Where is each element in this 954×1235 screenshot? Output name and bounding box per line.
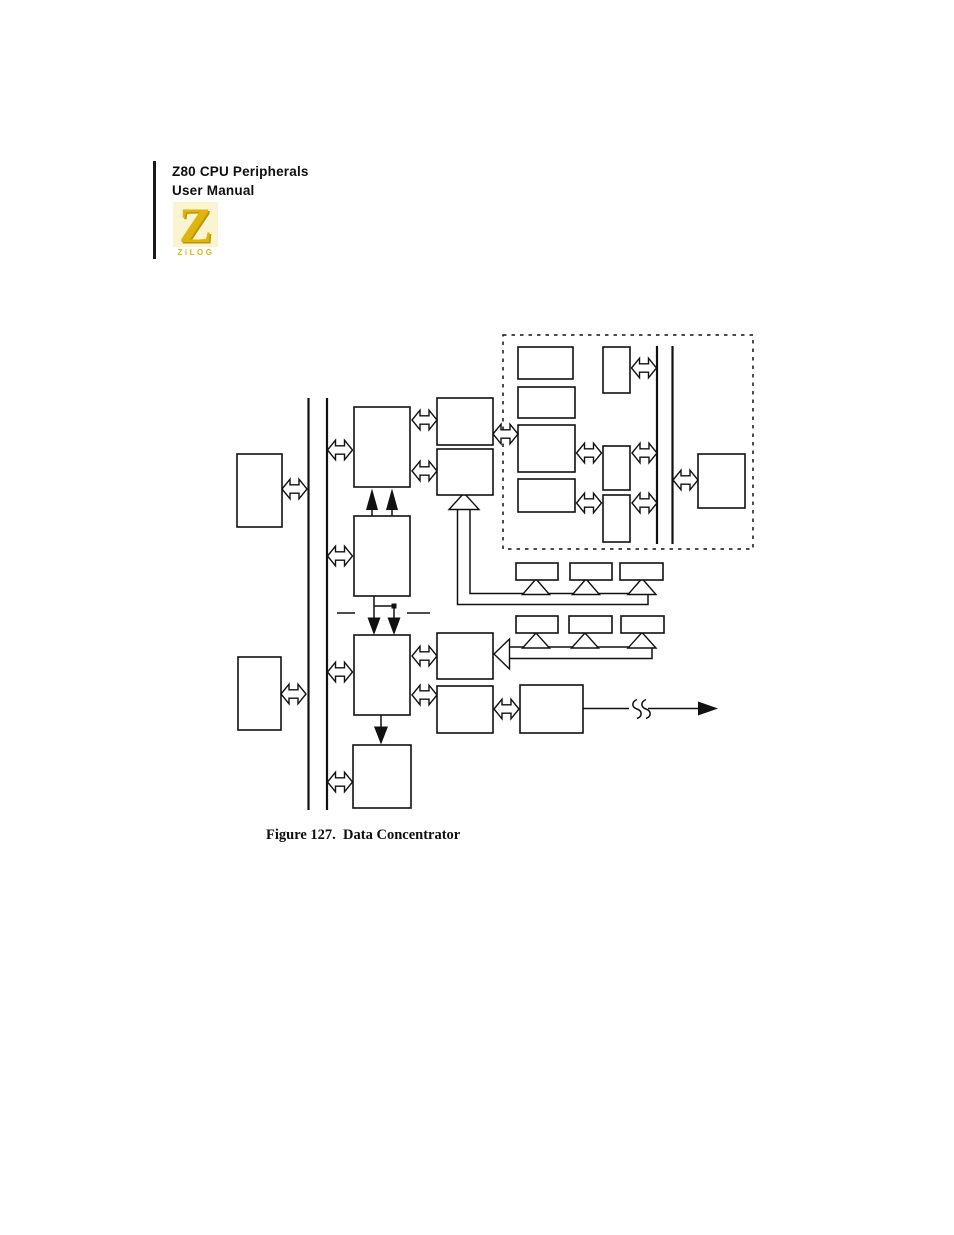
- output-line: [583, 700, 718, 719]
- fork-connector: [368, 596, 401, 635]
- diagram-box: [354, 516, 410, 596]
- diagram-box: [603, 347, 630, 393]
- bidirectional-arrow-icon: [282, 479, 307, 499]
- junction-dot: [392, 604, 397, 609]
- diagram-box: [437, 633, 493, 679]
- diagram-boxes: [237, 347, 745, 808]
- bidirectional-arrow-icon: [494, 699, 519, 719]
- connector-line: [374, 596, 394, 618]
- bidirectional-arrow-icon: [673, 470, 698, 490]
- arrow-right-icon: [698, 702, 718, 716]
- line-break-mark: [633, 700, 650, 719]
- diagram-box: [569, 616, 612, 633]
- diagram-box: [518, 347, 573, 379]
- bus-left-pair: [309, 398, 328, 810]
- bidirectional-arrow-icon: [328, 546, 353, 566]
- bidirectional-arrow-icon: [328, 440, 353, 460]
- bidirectional-arrow-icon: [577, 443, 602, 463]
- bidirectional-arrow-icon: [412, 410, 437, 430]
- bidirectional-arrow-icon: [328, 772, 353, 792]
- connector-line: [372, 510, 392, 516]
- fanout-channel-bottom: [494, 633, 656, 670]
- block-arrow-up-icon: [523, 633, 550, 648]
- diagram-box: [516, 563, 558, 580]
- arrow-down-icon: [374, 727, 388, 745]
- block-arrow-up-icon: [628, 633, 656, 649]
- diagram-box: [621, 616, 664, 633]
- bidirectional-arrow-icon: [577, 493, 602, 513]
- figure-diagram: [0, 0, 954, 1235]
- diagram-box: [570, 563, 612, 580]
- bidirectional-arrow-icon: [412, 685, 437, 705]
- diagram-box: [620, 563, 663, 580]
- bidirectional-arrow-icon: [632, 493, 657, 513]
- diagram-box: [437, 686, 493, 733]
- dual-up-arrow-connector: [366, 489, 398, 517]
- arrow-down-icon: [388, 618, 401, 636]
- diagram-box: [698, 454, 745, 508]
- diagram-box: [237, 454, 282, 527]
- diagram-box: [516, 616, 558, 633]
- bus-right-pair: [657, 346, 673, 544]
- diagram-box: [437, 449, 493, 495]
- diagram-box: [437, 398, 493, 445]
- block-arrow-left-icon: [494, 639, 510, 669]
- bidirectional-arrow-icon: [328, 662, 353, 682]
- diagram-box: [520, 685, 583, 733]
- arrow-up-icon: [386, 489, 398, 511]
- channel-outline: [508, 647, 652, 659]
- bidirectional-arrow-icon: [493, 424, 518, 444]
- bidirectional-arrow-icon: [412, 646, 437, 666]
- diagram-box: [518, 425, 575, 472]
- diagram-box: [518, 479, 575, 512]
- bidirectional-arrow-icon: [281, 684, 306, 704]
- block-arrow-up-icon: [572, 633, 599, 648]
- diagram-box: [238, 657, 281, 730]
- diagram-box: [353, 745, 411, 808]
- bidirectional-arrow-icon: [412, 461, 437, 481]
- bidirectional-arrow-icon: [632, 358, 657, 378]
- block-arrow-up-icon: [628, 579, 656, 595]
- manual-page: Z80 CPU Peripherals User Manual Z ZiLOG: [0, 0, 954, 1235]
- diagram-box: [603, 446, 630, 490]
- down-arrow-connector: [374, 715, 388, 745]
- arrow-up-icon: [366, 489, 378, 511]
- diagram-box: [603, 495, 630, 542]
- arrow-down-icon: [368, 618, 381, 636]
- figure-caption: Figure 127. Data Concentrator: [266, 827, 460, 844]
- diagram-box: [518, 387, 575, 418]
- block-arrow-up-icon: [523, 579, 550, 595]
- diagram-box: [354, 407, 410, 487]
- bidirectional-arrow-icon: [632, 443, 657, 463]
- diagram-box: [354, 635, 410, 715]
- block-arrow-up-icon: [573, 579, 600, 595]
